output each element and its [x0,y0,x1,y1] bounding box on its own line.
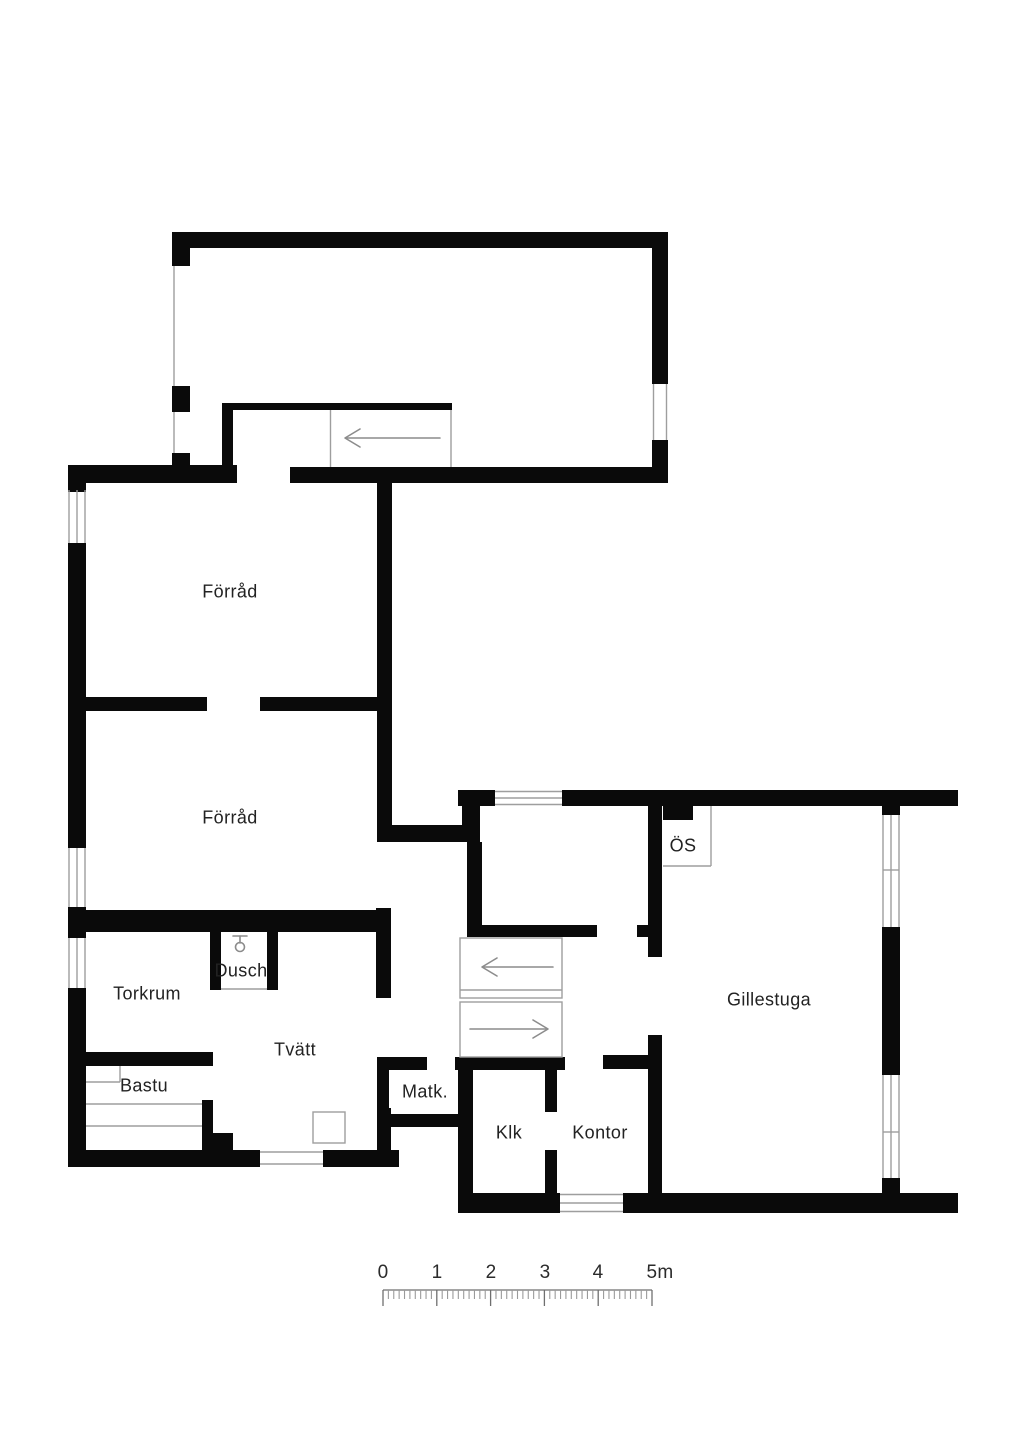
room-label-forrad-upper: Förråd [202,582,257,603]
hall-north-window [495,792,562,805]
washing-machine [313,1112,345,1143]
top-room-walls [172,232,668,483]
top-room-right-window [654,384,667,440]
kontor-bottom-window [560,1195,623,1212]
scale-label-1: 1 [432,1262,443,1284]
floor-plan: Förråd Förråd Torkrum Dusch Tvätt Bastu … [0,0,1024,1448]
stair-down-arrow-right [470,1020,548,1038]
main-stairs [460,938,562,1057]
gillestuga-east-window-2 [883,1075,899,1178]
gillestuga-east-window-1 [883,815,899,927]
room-label-bastu: Bastu [120,1076,168,1097]
left-wall-window-1 [69,490,85,543]
room-label-matk: Matk. [402,1082,448,1103]
scale-ruler [383,1290,652,1306]
scale-label-3: 3 [540,1262,551,1284]
stair-up-arrow-left [482,958,553,976]
room-label-gillestuga: Gillestuga [727,990,811,1011]
scale-label-4: 4 [593,1262,604,1284]
left-wing-walls [68,465,668,1167]
left-wall-window-2 [69,848,85,907]
stair-direction-arrow-left [345,429,440,447]
hall-walls [462,790,597,937]
room-label-tvatt: Tvätt [274,1040,316,1061]
scale-label-5m: 5m [647,1262,674,1284]
room-label-kontor: Kontor [572,1123,627,1144]
room-label-torkrum: Torkrum [113,984,181,1005]
floor-plan-drawing [0,0,1024,1448]
room-label-os: ÖS [670,836,697,857]
scale-label-0: 0 [378,1262,389,1284]
room-label-klk: Klk [496,1123,522,1144]
garage-stair [222,403,452,467]
room-label-dusch: Dusch [214,961,267,982]
scale-label-2: 2 [486,1262,497,1284]
tvatt-exterior-door [260,1152,323,1164]
left-wall-window-3 [69,938,85,988]
shower-head-icon [233,936,247,952]
room-label-forrad-lower: Förråd [202,808,257,829]
